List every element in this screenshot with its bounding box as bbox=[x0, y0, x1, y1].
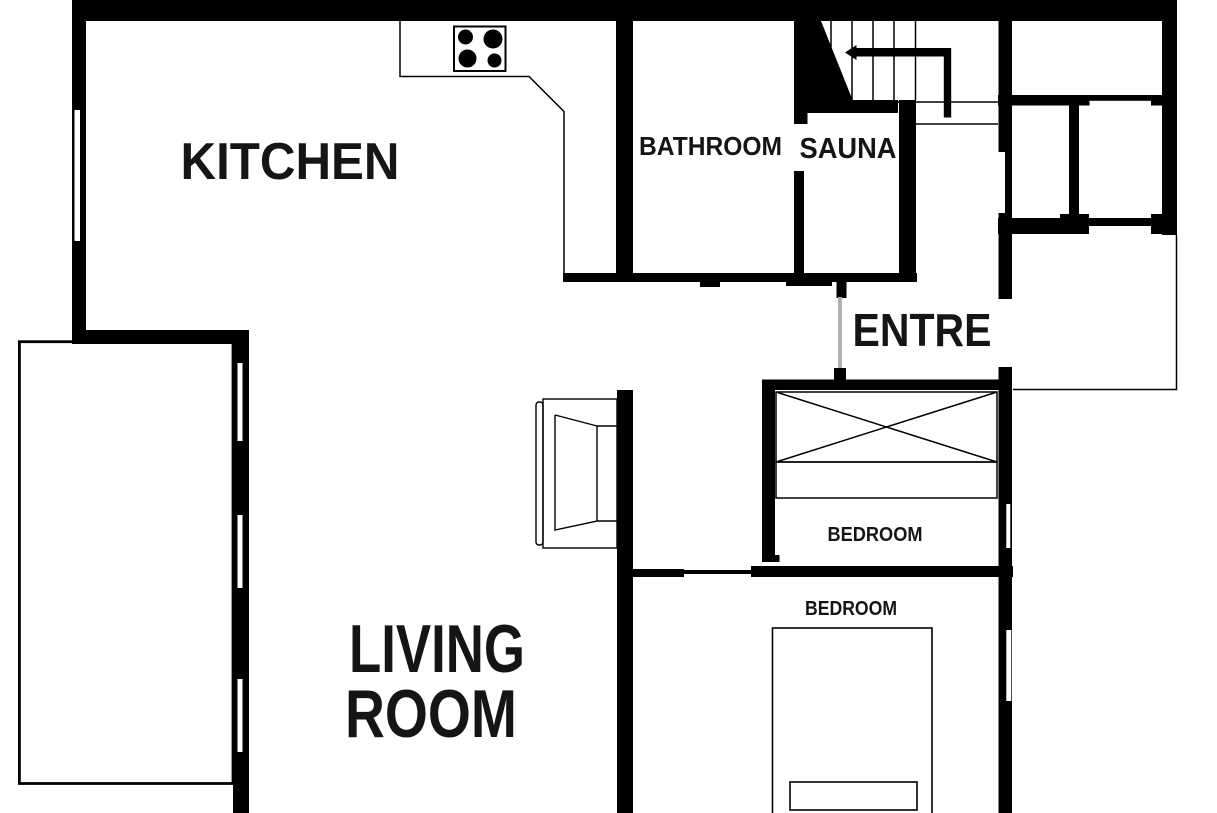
svg-text:BATHROOM: BATHROOM bbox=[639, 131, 782, 161]
svg-text:BEDROOM: BEDROOM bbox=[828, 524, 923, 546]
svg-text:KITCHEN: KITCHEN bbox=[181, 133, 400, 191]
svg-text:ROOM: ROOM bbox=[345, 676, 517, 752]
svg-text:ENTRE: ENTRE bbox=[853, 304, 992, 356]
svg-text:BEDROOM: BEDROOM bbox=[805, 598, 897, 620]
svg-text:SAUNA: SAUNA bbox=[800, 133, 897, 165]
